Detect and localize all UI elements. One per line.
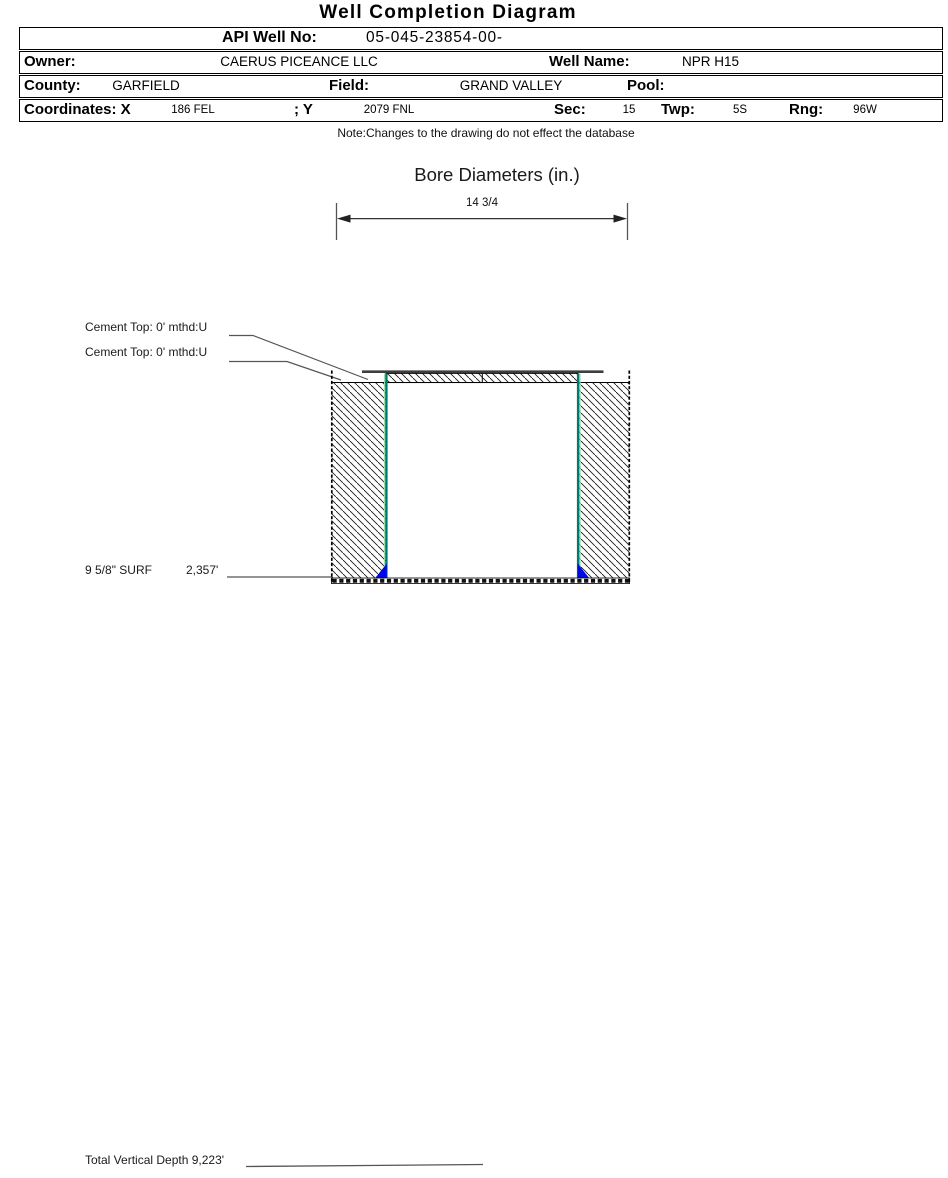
cement-top-leader-1 xyxy=(229,336,368,380)
well-info-table: API Well No: 05-045-23854-00- Owner: CAE… xyxy=(19,27,943,123)
table-row-api: API Well No: 05-045-23854-00- xyxy=(19,27,943,50)
well-name-value: NPR H15 xyxy=(682,52,739,72)
rng-label: Rng: xyxy=(789,100,823,120)
bore-dimension-label: 14 3/4 xyxy=(466,197,498,209)
county-label: County: xyxy=(24,76,81,96)
casing-shoe-left xyxy=(375,564,387,579)
cement-band xyxy=(386,373,578,382)
owner-label: Owner: xyxy=(24,52,76,72)
casing-shoe-right xyxy=(578,564,590,579)
cement-top-annotation-1: Cement Top: 0' mthd:U xyxy=(85,320,207,334)
api-well-no-value: 05-045-23854-00- xyxy=(366,28,503,48)
cement-top-annotation-2: Cement Top: 0' mthd:U xyxy=(85,345,207,359)
dimension-arrowhead-right xyxy=(614,215,628,223)
field-value: GRAND VALLEY xyxy=(460,76,563,96)
coordinates-x-value: 186 FEL xyxy=(171,100,214,120)
coordinates-y-value: 2079 FNL xyxy=(364,100,415,120)
surface-casing-depth: 2,357' xyxy=(186,563,218,577)
surface-casing-label: 9 5/8" SURF xyxy=(85,563,152,577)
coordinates-label: Coordinates: X xyxy=(24,100,131,120)
database-note: Note:Changes to the drawing do not effec… xyxy=(337,126,634,140)
page-title: Well Completion Diagram xyxy=(0,2,896,24)
county-value: GARFIELD xyxy=(112,76,180,96)
dimension-arrowhead-left xyxy=(337,215,351,223)
borehole-wall-left xyxy=(332,383,387,579)
borehole-bottom-band xyxy=(332,578,630,584)
field-label: Field: xyxy=(329,76,369,96)
table-row-county: County: GARFIELD Field: GRAND VALLEY Poo… xyxy=(19,75,943,98)
twp-value: 5S xyxy=(733,100,747,120)
owner-value: CAERUS PICEANCE LLC xyxy=(220,52,378,72)
sec-value: 15 xyxy=(623,100,636,120)
cement-top-leader-2 xyxy=(229,362,341,381)
total-vertical-depth-label: Total Vertical Depth 9,223' xyxy=(85,1153,224,1167)
table-row-coordinates: Coordinates: X 186 FEL ; Y 2079 FNL Sec:… xyxy=(19,99,943,122)
api-well-no-label: API Well No: xyxy=(222,28,317,48)
well-completion-document: Well Completion Diagram API Well No: 05-… xyxy=(0,0,948,1178)
coordinates-y-label: ; Y xyxy=(294,100,313,120)
twp-label: Twp: xyxy=(661,100,695,120)
sec-label: Sec: xyxy=(554,100,586,120)
bore-diameters-title: Bore Diameters (in.) xyxy=(414,164,580,186)
table-row-owner: Owner: CAERUS PICEANCE LLC Well Name: NP… xyxy=(19,51,943,74)
borehole-wall-right xyxy=(578,383,630,579)
tvd-underline xyxy=(246,1165,483,1167)
rng-value: 96W xyxy=(853,100,877,120)
pool-label: Pool: xyxy=(627,76,665,96)
well-name-label: Well Name: xyxy=(549,52,630,72)
